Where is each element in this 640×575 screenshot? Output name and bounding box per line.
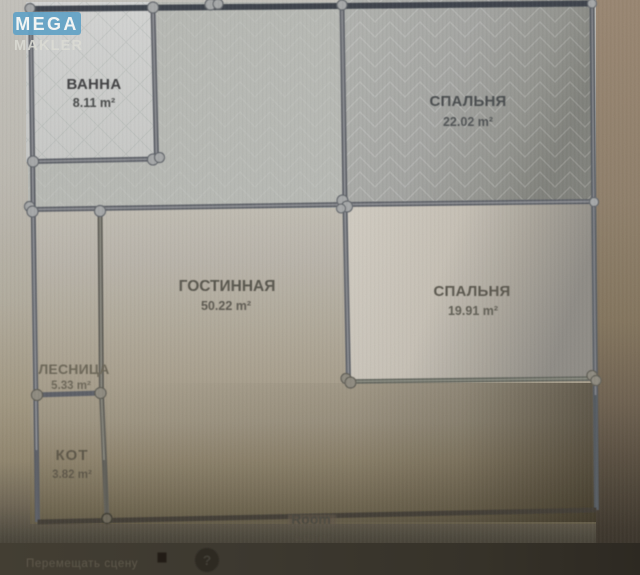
svg-text:MAKLER: MAKLER — [14, 38, 83, 54]
svg-text:MEGA: MEGA — [15, 14, 79, 34]
svg-text:Перемещать сцену: Перемещать сцену — [26, 558, 138, 570]
svg-text:?: ? — [203, 552, 212, 568]
